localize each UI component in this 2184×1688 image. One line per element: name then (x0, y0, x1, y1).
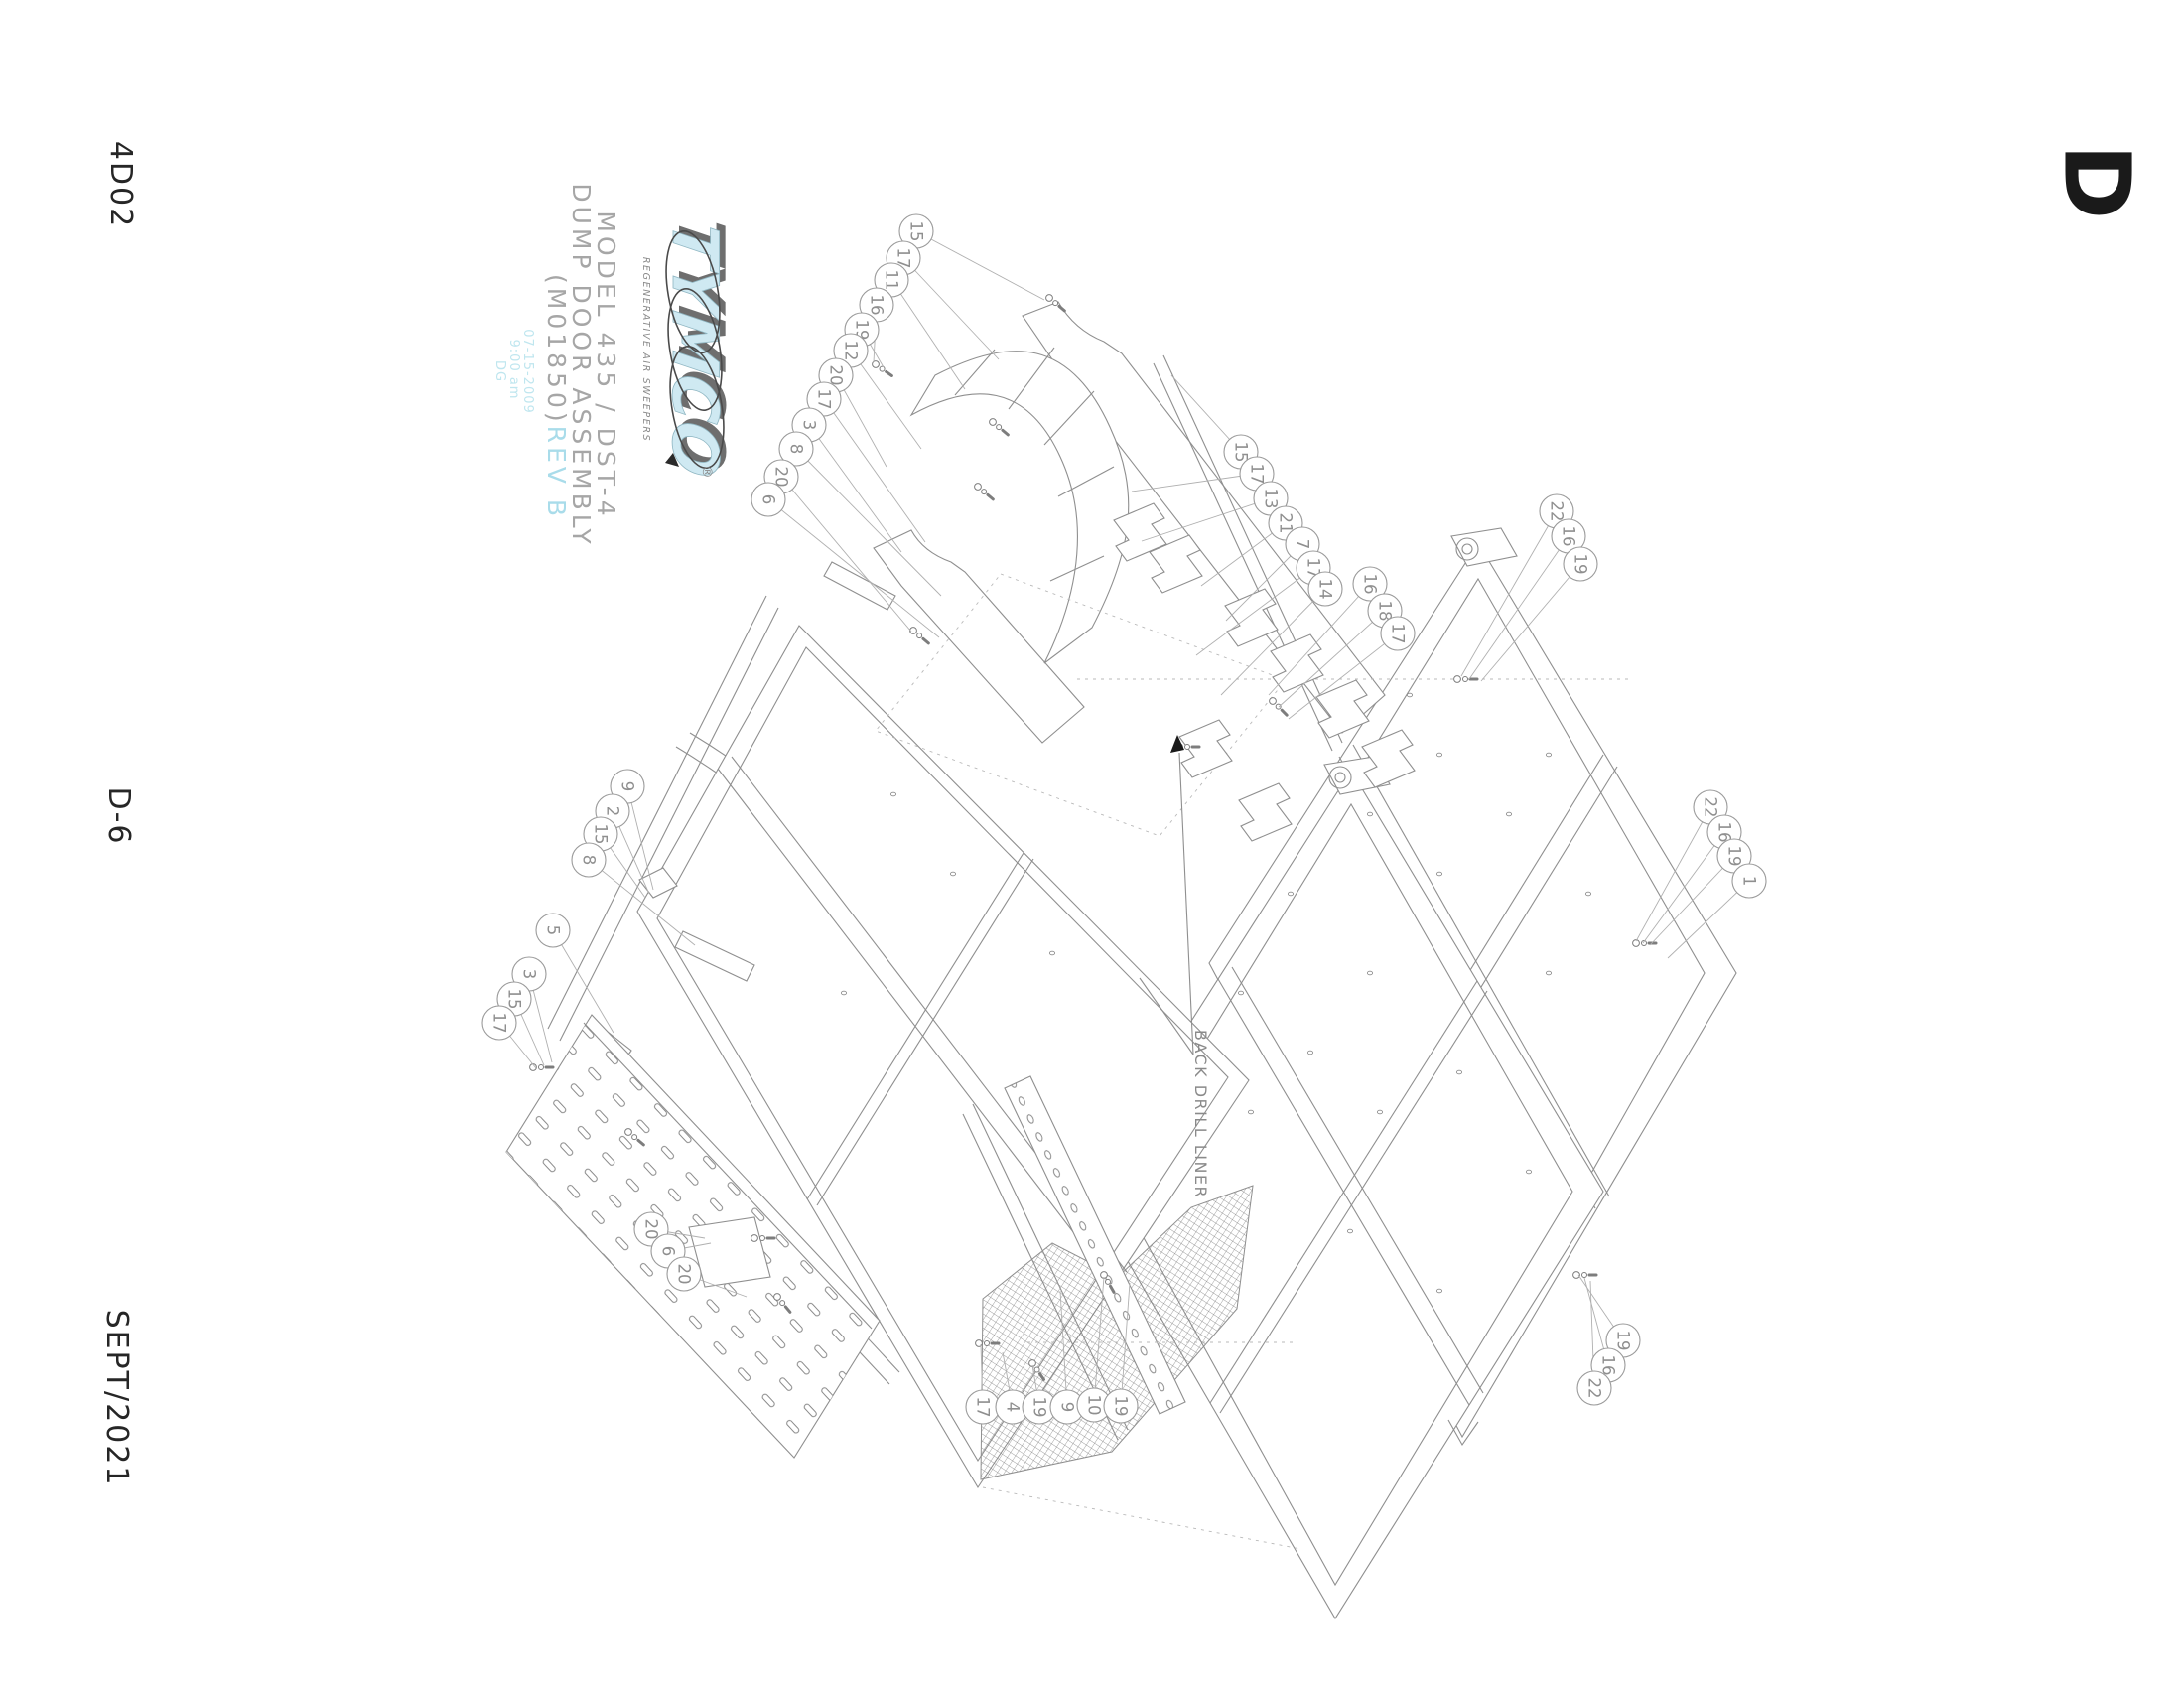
balloon-number: 6 (659, 1246, 678, 1257)
balloon-number: 5 (544, 925, 563, 936)
plot-date: 07-15-2009 (520, 329, 535, 414)
balloon-number: 15 (505, 989, 524, 1010)
leader-line (916, 231, 1044, 300)
fastener-set (975, 484, 994, 499)
balloon-number: 19 (1112, 1396, 1131, 1417)
leader-line (553, 930, 614, 1033)
plot-time: 9:00 am (506, 340, 521, 400)
balloon-number: 7 (1294, 539, 1312, 550)
balloon-number: 11 (883, 270, 901, 291)
balloon-number: 12 (842, 341, 861, 361)
balloon-number: 9 (618, 781, 637, 792)
registered-mark: ® (699, 466, 714, 479)
balloon-17: 17 (966, 1390, 1000, 1424)
balloon-number: 9 (1058, 1402, 1077, 1413)
fastener-set (1270, 698, 1288, 716)
balloon-number: 15 (907, 221, 926, 242)
title-part-rev-line: (M01850)REV B (542, 274, 571, 520)
fastener-set (873, 361, 892, 376)
drawing-sheet: BACK DRILL LINER 15171116191220173820615… (0, 0, 2184, 1688)
part-number: (M01850) (542, 274, 571, 426)
sheet-ref: D-6 (101, 786, 136, 845)
small-bar (824, 562, 895, 610)
drafter-initials: DG (492, 360, 507, 382)
balloon-number: 22 (1548, 501, 1567, 522)
balloon-number: 4 (1004, 1402, 1023, 1413)
section-letter: D (2044, 144, 2150, 219)
balloon-number: 17 (974, 1397, 993, 1418)
balloon-17: 17 (482, 1006, 516, 1040)
z-bracket (1239, 783, 1292, 841)
balloon-17: 17 (1381, 617, 1415, 650)
balloon-number: 19 (1030, 1397, 1049, 1418)
balloon-number: 10 (1085, 1395, 1104, 1416)
balloon-number: 22 (1585, 1378, 1604, 1399)
fastener-set (990, 419, 1009, 435)
balloon-19: 19 (1104, 1389, 1138, 1423)
balloon-number: 8 (580, 855, 599, 866)
balloon-number: 20 (675, 1264, 694, 1285)
balloon-number: 16 (1361, 574, 1380, 595)
balloon-number: 20 (642, 1219, 661, 1240)
balloon-number: 8 (787, 444, 806, 455)
balloon-1: 1 (1732, 864, 1766, 898)
balloon-8: 8 (572, 843, 606, 877)
fastener-set (910, 628, 929, 643)
leader-line (851, 351, 921, 449)
title-block: MODEL 435 / DST-4 DUMP DOOR ASSEMBLY (M0… (492, 183, 620, 547)
balloon-number: 19 (1725, 846, 1744, 867)
annotation-text: BACK DRILL LINER (1191, 1030, 1210, 1198)
balloon-19: 19 (1564, 547, 1597, 581)
balloon-6: 6 (751, 483, 785, 516)
balloon-number: 2 (604, 806, 622, 817)
leader-line (891, 280, 965, 389)
balloon-number: 3 (520, 969, 539, 980)
leader-line (796, 449, 941, 596)
leader-line (903, 258, 999, 359)
side-plate-lower (874, 530, 1084, 743)
balloon-number: 13 (1262, 489, 1281, 509)
balloon-number: 17 (1389, 624, 1408, 644)
balloon-5: 5 (536, 914, 570, 947)
balloon-number: 17 (490, 1013, 509, 1034)
balloon-22: 22 (1577, 1371, 1611, 1405)
logo-tagline: REGENERATIVE AIR SWEEPERS (640, 257, 651, 442)
hinge-eye-bracket (1451, 528, 1517, 566)
balloon-number: 19 (1614, 1331, 1633, 1351)
balloon-number: 19 (1571, 554, 1590, 575)
balloon-20: 20 (667, 1257, 701, 1291)
balloon-number: 15 (592, 824, 611, 845)
balloon-number: 17 (1248, 464, 1267, 485)
balloon-number: 1 (1740, 876, 1759, 887)
tymco-logo: TYMCO TYMCO REGENERATIVE AIR SWEEPERS ® (640, 212, 738, 482)
balloon-14: 14 (1308, 572, 1342, 606)
balloon-number: 3 (800, 420, 819, 431)
fastener-set (1573, 1272, 1596, 1279)
balloon-number: 16 (868, 295, 887, 316)
revision-label: REV B (542, 426, 571, 520)
exploded-parts-diagram: BACK DRILL LINER 15171116191220173820615… (0, 0, 2184, 1688)
leader-line (824, 399, 925, 542)
balloon-number: 16 (1560, 526, 1578, 547)
sheet-date: SEPT/2021 (99, 1310, 134, 1487)
balloon-number: 6 (759, 494, 778, 505)
sheet-code: 4D02 (103, 141, 138, 228)
balloon-number: 22 (1702, 797, 1720, 818)
balloon-number: 17 (815, 389, 834, 410)
balloon-number: 14 (1316, 579, 1335, 600)
